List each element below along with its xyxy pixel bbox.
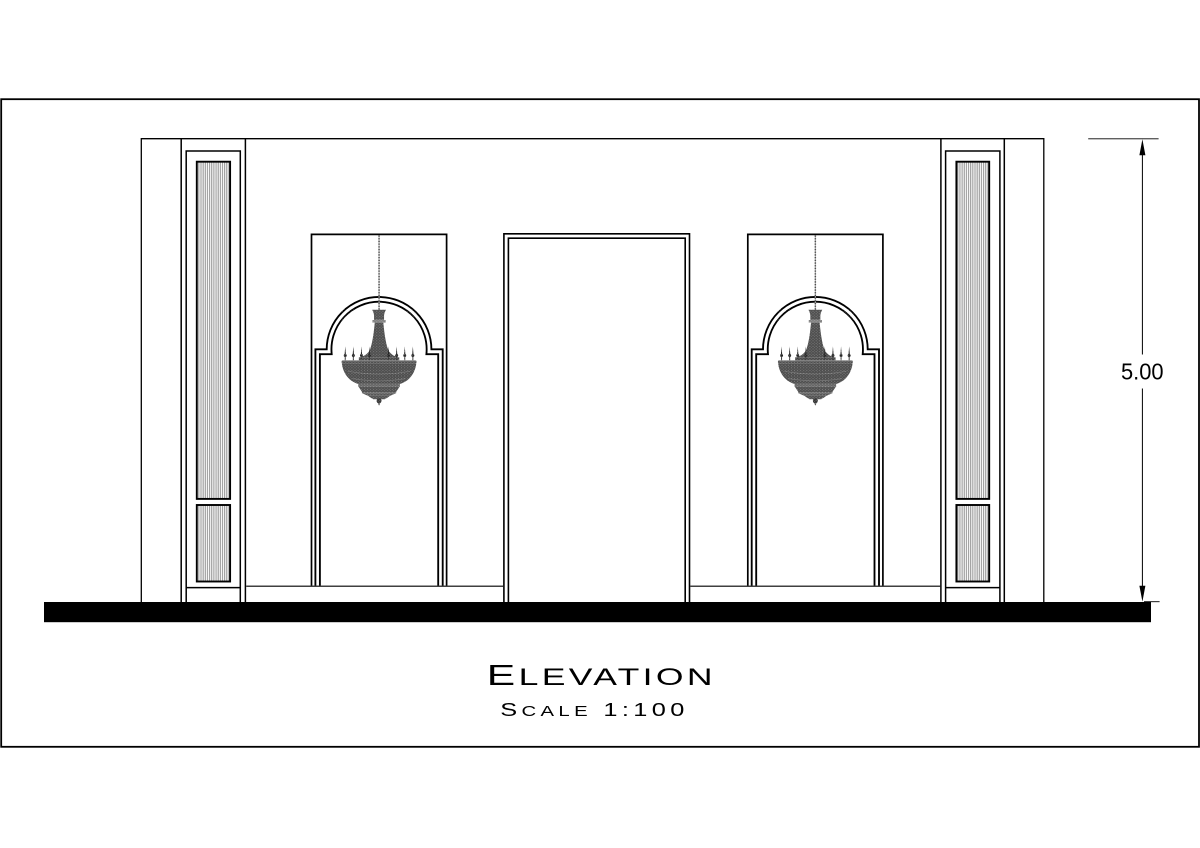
svg-text:5.00: 5.00 (1121, 359, 1164, 385)
svg-text:ELEVATION: ELEVATION (487, 659, 716, 691)
svg-text:SCALE 1:100: SCALE 1:100 (500, 699, 688, 720)
